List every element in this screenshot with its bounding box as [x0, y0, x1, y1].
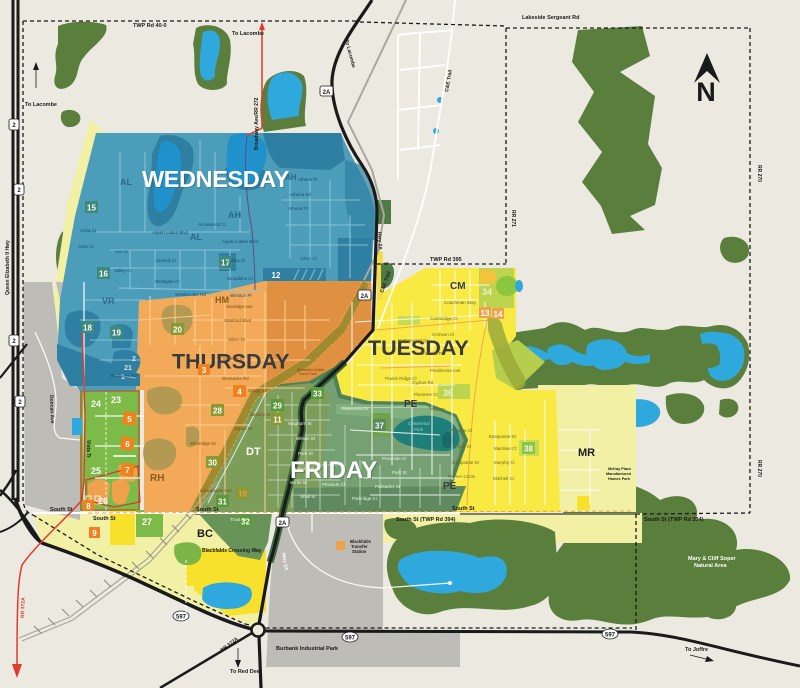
- svg-text:AH: AH: [228, 210, 241, 220]
- svg-text:Parkridge Cr: Parkridge Cr: [352, 496, 378, 501]
- svg-text:Piper Cl: Piper Cl: [455, 444, 471, 449]
- svg-text:Westridge Dr: Westridge Dr: [190, 441, 217, 446]
- svg-text:15: 15: [87, 204, 96, 213]
- svg-text:3: 3: [202, 366, 207, 375]
- svg-text:Park: Park: [414, 427, 424, 432]
- svg-text:597: 597: [345, 636, 356, 642]
- svg-text:To Red Deer: To Red Deer: [230, 669, 263, 675]
- svg-text:South St: South St: [50, 507, 73, 513]
- svg-text:Hwy 2A: Hwy 2A: [376, 232, 383, 251]
- svg-text:Homes Park: Homes Park: [608, 477, 631, 481]
- svg-text:Shull St: Shull St: [300, 494, 316, 499]
- svg-text:VR: VR: [102, 296, 115, 306]
- svg-text:Westgate Cr: Westgate Cr: [155, 279, 180, 284]
- svg-text:Athens Pl: Athens Pl: [298, 177, 317, 182]
- svg-text:Pondside Cr: Pondside Cr: [382, 456, 407, 461]
- svg-text:Wilson St: Wilson St: [296, 436, 316, 441]
- svg-text:14: 14: [494, 310, 503, 319]
- svg-text:Plumtree Cr: Plumtree Cr: [414, 392, 439, 397]
- svg-text:South St (TWP Rd 394): South St (TWP Rd 394): [396, 517, 456, 523]
- svg-text:Aspen Lakes Blvd: Aspen Lakes Blvd: [152, 230, 189, 235]
- svg-text:Weelbrooke Rd: Weelbrooke Rd: [175, 292, 206, 297]
- svg-text:Almond Cr: Almond Cr: [155, 258, 177, 263]
- svg-text:26: 26: [98, 496, 108, 506]
- svg-text:7: 7: [125, 466, 130, 475]
- svg-text:TWP Rd 395: TWP Rd 395: [430, 257, 462, 263]
- svg-text:To Lacombe: To Lacombe: [232, 31, 264, 37]
- svg-text:25: 25: [91, 466, 101, 476]
- svg-text:To Lacombe: To Lacombe: [25, 102, 57, 108]
- svg-text:South St: South St: [452, 506, 475, 512]
- svg-text:To Joffre: To Joffre: [685, 647, 708, 653]
- svg-text:RR 372A: RR 372A: [20, 597, 27, 618]
- svg-text:Coachman Way: Coachman Way: [444, 300, 477, 305]
- svg-text:Womacks Rd: Womacks Rd: [222, 376, 249, 381]
- svg-text:Sunridge Ave: Sunridge Ave: [226, 304, 253, 309]
- svg-text:30: 30: [208, 459, 217, 468]
- svg-text:Panorama Dr: Panorama Dr: [342, 406, 369, 411]
- svg-text:Athena Pl: Athena Pl: [288, 206, 308, 211]
- svg-text:Silver Dr: Silver Dr: [228, 337, 246, 342]
- svg-text:24: 24: [91, 399, 101, 409]
- svg-text:19: 19: [112, 329, 121, 338]
- svg-text:Waghorn St: Waghorn St: [288, 421, 312, 426]
- svg-text:9: 9: [92, 529, 97, 538]
- svg-text:10: 10: [238, 490, 247, 499]
- svg-text:RH: RH: [150, 473, 164, 484]
- svg-text:Maclean Cl: Maclean Cl: [494, 446, 517, 451]
- svg-text:2A: 2A: [323, 90, 331, 96]
- svg-text:Indiana St: Indiana St: [294, 466, 315, 471]
- svg-text:WEDNESDAY: WEDNESDAY: [142, 166, 290, 192]
- svg-text:31: 31: [218, 498, 227, 507]
- svg-text:Winston Pl: Winston Pl: [230, 293, 252, 298]
- svg-text:Adina Cl: Adina Cl: [228, 258, 245, 263]
- svg-text:McKay Place: McKay Place: [608, 467, 631, 471]
- svg-text:AL: AL: [120, 177, 132, 187]
- svg-text:Palmer Circle: Palmer Circle: [448, 474, 476, 479]
- svg-text:Valley Cr: Valley Cr: [114, 268, 132, 273]
- svg-text:Natural Area: Natural Area: [694, 563, 727, 569]
- svg-text:5: 5: [127, 415, 132, 424]
- svg-text:29: 29: [273, 402, 282, 411]
- svg-text:2A: 2A: [361, 294, 369, 300]
- svg-text:33: 33: [313, 390, 322, 399]
- svg-text:Arlen Cl: Arlen Cl: [78, 244, 94, 249]
- svg-text:34: 34: [482, 287, 492, 297]
- svg-text:Churchill Pl: Churchill Pl: [420, 351, 443, 356]
- svg-text:Lansdowne Ave: Lansdowne Ave: [200, 488, 232, 493]
- svg-text:23: 23: [111, 395, 121, 405]
- svg-text:Lakeside Sergeant Rd: Lakeside Sergeant Rd: [522, 15, 579, 21]
- svg-text:Burbank Industrial Park: Burbank Industrial Park: [276, 646, 339, 652]
- svg-text:Vista Tr: Vista Tr: [85, 440, 91, 458]
- svg-text:Stanford Blvd: Stanford Blvd: [224, 318, 252, 323]
- svg-text:597: 597: [176, 615, 187, 621]
- svg-text:36: 36: [443, 388, 453, 398]
- svg-text:12: 12: [272, 271, 281, 280]
- svg-text:Sunrise Cl: Sunrise Cl: [223, 356, 244, 361]
- svg-text:27: 27: [142, 517, 152, 527]
- svg-text:16: 16: [99, 270, 108, 279]
- svg-text:37: 37: [375, 422, 384, 431]
- svg-text:PE: PE: [443, 481, 457, 492]
- svg-text:13: 13: [481, 309, 490, 318]
- svg-text:Cambridge Cl: Cambridge Cl: [430, 316, 458, 321]
- svg-text:Pinetree Cl: Pinetree Cl: [450, 428, 472, 433]
- svg-text:597: 597: [605, 633, 616, 639]
- svg-text:BC: BC: [197, 528, 213, 540]
- svg-text:Mary & Cliff Soper: Mary & Cliff Soper: [688, 556, 737, 562]
- svg-text:Mitchell Cr: Mitchell Cr: [493, 476, 515, 481]
- svg-text:Stanley St: Stanley St: [250, 412, 271, 417]
- svg-text:Prairie Ridge Cl: Prairie Ridge Cl: [385, 376, 417, 381]
- svg-text:Pinnacle Cl: Pinnacle Cl: [322, 482, 345, 487]
- svg-text:Eastpointe Dr: Eastpointe Dr: [489, 434, 517, 439]
- svg-text:AH: AH: [285, 173, 297, 182]
- svg-text:PE: PE: [404, 399, 418, 410]
- svg-text:RR 270: RR 270: [756, 165, 762, 182]
- svg-text:18: 18: [83, 324, 92, 333]
- svg-text:RR 270: RR 270: [756, 460, 762, 477]
- svg-text:Cottonwood Dr: Cottonwood Dr: [398, 338, 429, 343]
- svg-text:6: 6: [125, 440, 130, 449]
- svg-text:38: 38: [524, 445, 533, 454]
- svg-text:TWP Rd 40-0: TWP Rd 40-0: [133, 23, 167, 29]
- svg-text:South St: South St: [196, 507, 219, 513]
- svg-text:Arrowwood Cl: Arrowwood Cl: [198, 222, 226, 227]
- svg-text:Park St: Park St: [392, 470, 408, 475]
- svg-text:RR 271: RR 271: [510, 210, 516, 227]
- svg-text:Ponderosa Ave: Ponderosa Ave: [430, 368, 461, 373]
- svg-text:South St (TWP Rd 394): South St (TWP Rd 394): [644, 517, 704, 523]
- svg-text:Palisades St: Palisades St: [375, 484, 401, 489]
- svg-text:28: 28: [213, 407, 222, 416]
- svg-text:Centennial: Centennial: [408, 421, 431, 426]
- svg-text:Anna Cl: Anna Cl: [80, 228, 96, 233]
- svg-text:4: 4: [237, 388, 242, 397]
- svg-text:Station: Station: [352, 549, 367, 554]
- svg-text:Winto St: Winto St: [290, 480, 308, 485]
- svg-text:2: 2: [132, 356, 136, 363]
- svg-text:20: 20: [173, 326, 182, 335]
- svg-text:Trout St: Trout St: [230, 517, 247, 522]
- svg-text:Broadway Ave/RR 272: Broadway Ave/RR 272: [254, 97, 260, 150]
- svg-text:Duncan Ave: Duncan Ave: [48, 395, 55, 424]
- svg-text:2A: 2A: [279, 521, 287, 527]
- svg-text:Woodbine Cl: Woodbine Cl: [227, 276, 253, 281]
- svg-text:Pine Cr: Pine Cr: [430, 407, 446, 412]
- svg-text:AL: AL: [190, 232, 202, 242]
- svg-text:Manufactured: Manufactured: [606, 472, 632, 476]
- svg-text:Gregg St: Gregg St: [248, 388, 267, 393]
- svg-text:21: 21: [124, 365, 132, 372]
- svg-text:DT: DT: [246, 446, 261, 458]
- svg-text:MR: MR: [578, 447, 595, 459]
- svg-text:Crimson Cl: Crimson Cl: [432, 332, 454, 337]
- svg-text:Eastpointe Dr: Eastpointe Dr: [452, 460, 480, 465]
- svg-text:11: 11: [273, 416, 282, 425]
- svg-text:Aspen Dr: Aspen Dr: [234, 426, 253, 431]
- svg-text:Park St: Park St: [298, 451, 314, 456]
- svg-text:Aztec Cr: Aztec Cr: [300, 256, 318, 261]
- svg-text:Womacks Rd: Womacks Rd: [110, 373, 137, 378]
- svg-text:8: 8: [86, 502, 91, 511]
- svg-text:Athena Rd: Athena Rd: [290, 192, 312, 197]
- svg-text:Ava Cr: Ava Cr: [115, 249, 129, 254]
- svg-text:Murphy Cl: Murphy Cl: [494, 460, 515, 465]
- svg-text:South St: South St: [93, 516, 116, 522]
- svg-text:N: N: [696, 77, 716, 107]
- svg-text:THURSDAY: THURSDAY: [172, 350, 289, 374]
- svg-text:Aspen Lakes Blvd: Aspen Lakes Blvd: [222, 239, 259, 244]
- svg-text:Home Park: Home Park: [299, 372, 317, 376]
- svg-text:Queen Elizabeth II Hwy: Queen Elizabeth II Hwy: [5, 240, 11, 295]
- svg-text:CM: CM: [450, 281, 466, 292]
- svg-text:Blackfalds Crossing Way: Blackfalds Crossing Way: [202, 548, 262, 554]
